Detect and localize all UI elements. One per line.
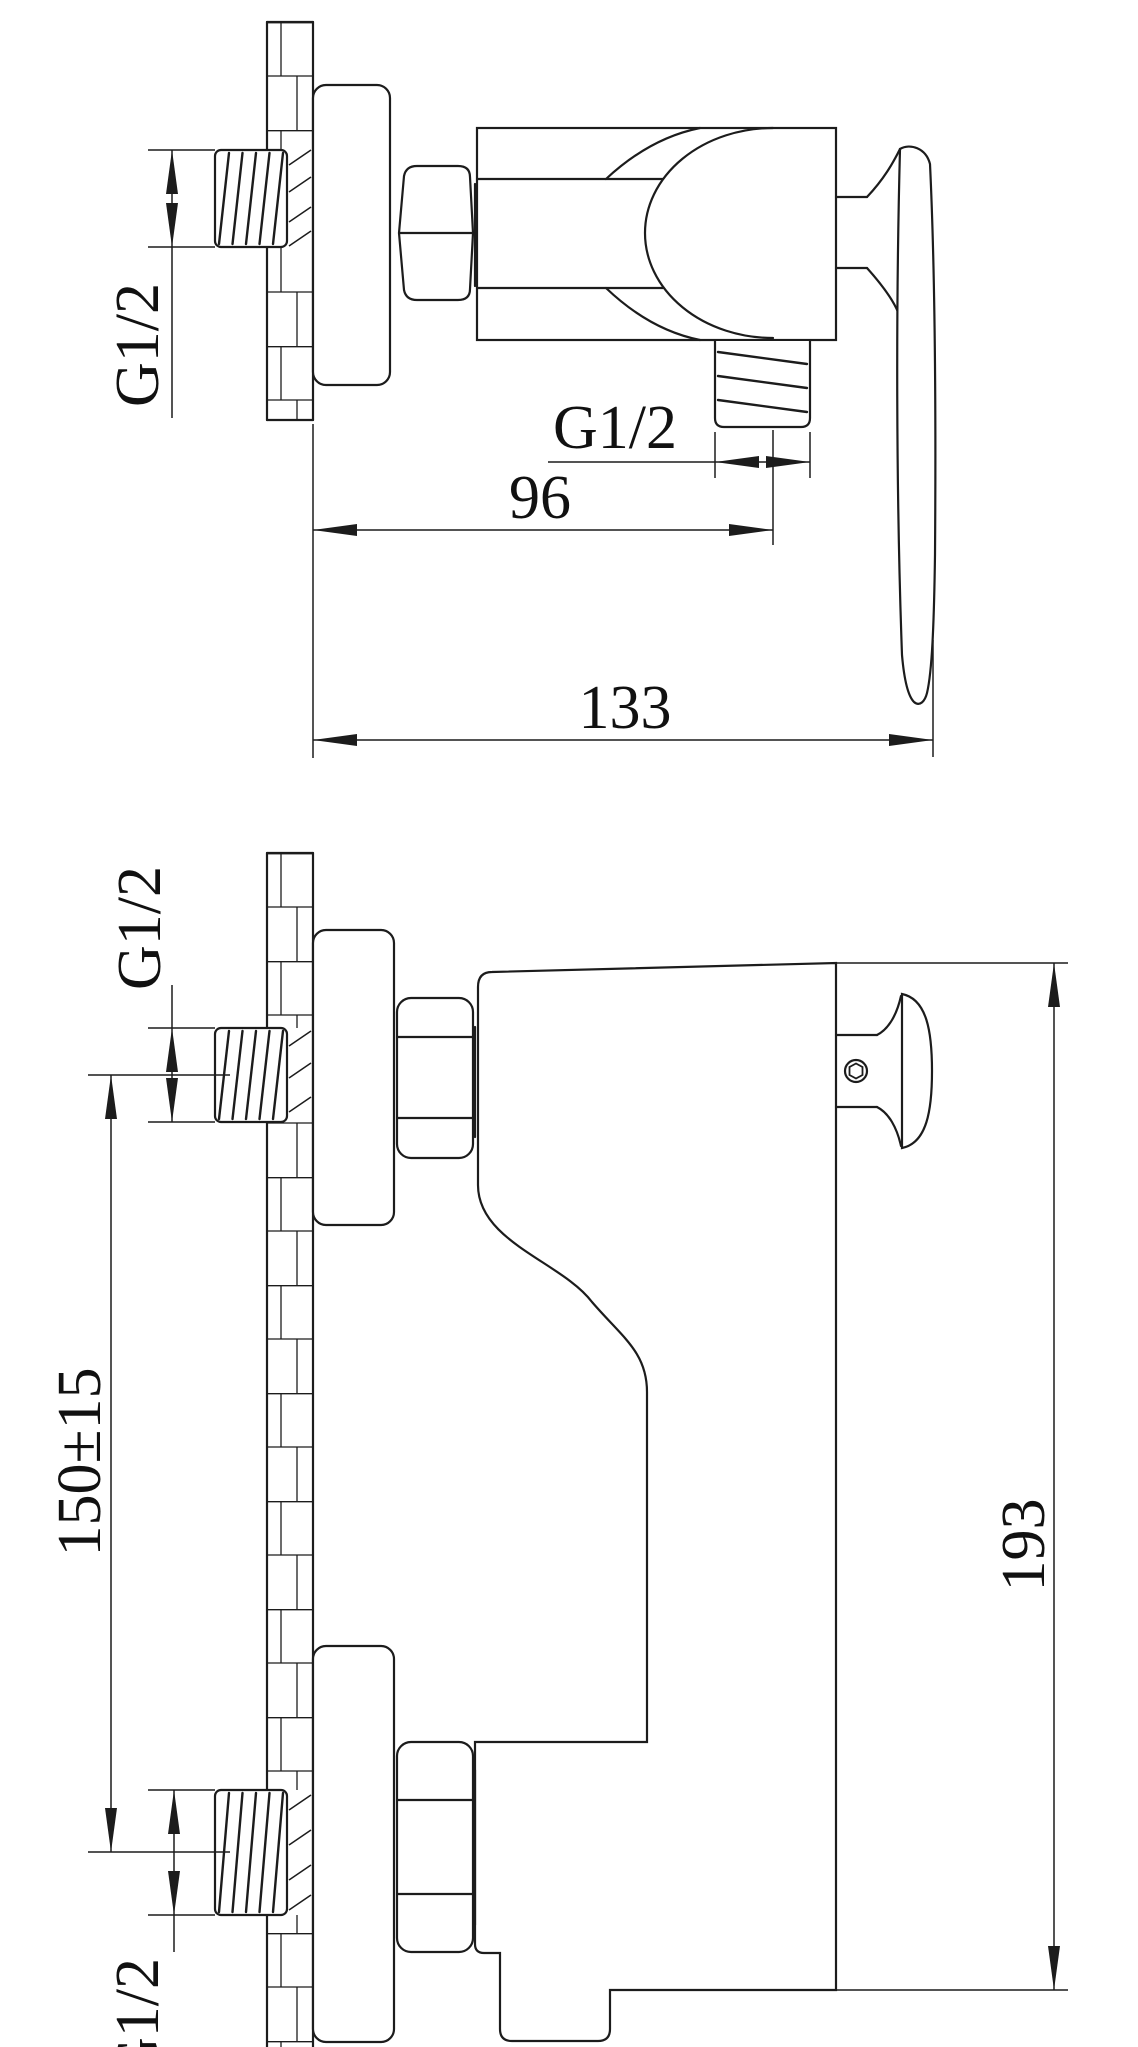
lever-blade: [897, 147, 935, 704]
upper-escutcheon-side-view: [313, 930, 394, 1225]
dim-133: 133: [313, 640, 933, 757]
mixer-body-top-view: [475, 128, 836, 340]
dim-label-150: 150±15: [46, 1367, 114, 1556]
hex-nut-top-view: [399, 166, 473, 300]
dim-label-outlet-g12: G1/2: [553, 394, 677, 462]
shower-mixer-dimension-drawing: G1/2 G1/2 96 133: [0, 0, 1138, 2047]
escutcheon-top-view: [313, 85, 390, 385]
side-view: G1/2 150±15 G1/2 193: [46, 853, 1068, 2047]
outlet-thread-top-view: [715, 341, 810, 427]
inlet-thread-top-view: [215, 150, 311, 247]
lever-handle-top-view: [836, 147, 935, 704]
dim-label-193: 193: [990, 1499, 1058, 1592]
dim-193: 193: [836, 963, 1068, 1990]
top-view: G1/2 G1/2 96 133: [104, 22, 935, 758]
mixer-body-side-view: [475, 963, 836, 2041]
dim-150: 150±15: [46, 1075, 230, 1852]
dim-inlet-g12-top-view: G1/2: [104, 150, 215, 418]
set-screw-icon: [845, 1060, 867, 1082]
dim-label-96: 96: [509, 464, 571, 532]
lower-hex-nut-side-view: [397, 1742, 473, 1952]
lever-knob-side-view: [836, 994, 932, 1148]
dim-label-inlet-g12: G1/2: [104, 283, 172, 407]
lower-escutcheon-side-view: [313, 1646, 394, 2042]
dim-label-lower-g12: G1/2: [104, 1958, 172, 2047]
dim-label-133: 133: [579, 674, 672, 742]
dim-label-upper-g12: G1/2: [106, 866, 174, 990]
dim-lower-g12-side-view: G1/2: [104, 1790, 215, 2047]
drawing-sheet: G1/2 G1/2 96 133: [0, 0, 1138, 2047]
upper-hex-nut-side-view: [397, 998, 473, 1158]
dim-96: 96: [313, 424, 773, 758]
dim-upper-g12-side-view: G1/2: [106, 866, 215, 1122]
